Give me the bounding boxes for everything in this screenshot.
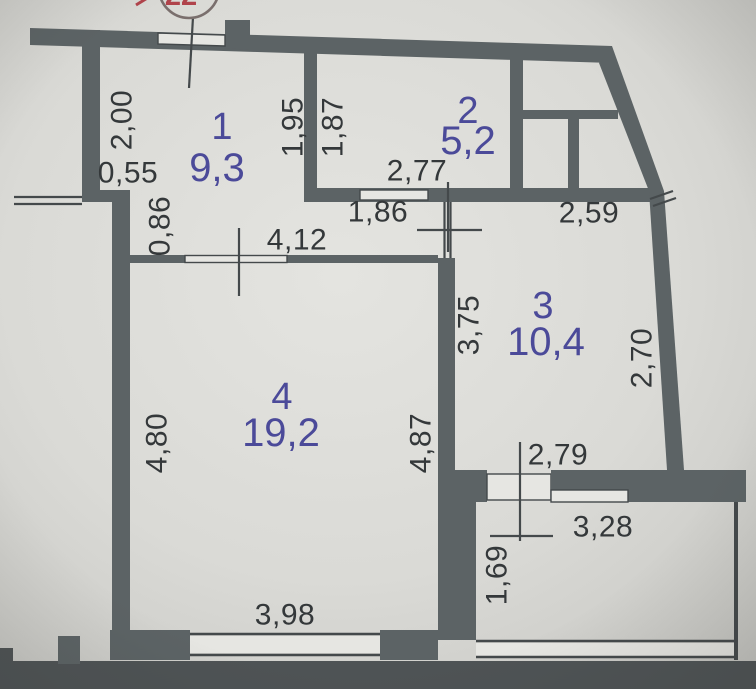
floor-plan: 22 1 9,3 2 5,2 3 10,4 4 19,2 2,00 0,86 1… xyxy=(0,0,756,689)
photo-vignette xyxy=(0,0,756,689)
scanned-page: 22 1 9,3 2 5,2 3 10,4 4 19,2 2,00 0,86 1… xyxy=(0,0,756,689)
